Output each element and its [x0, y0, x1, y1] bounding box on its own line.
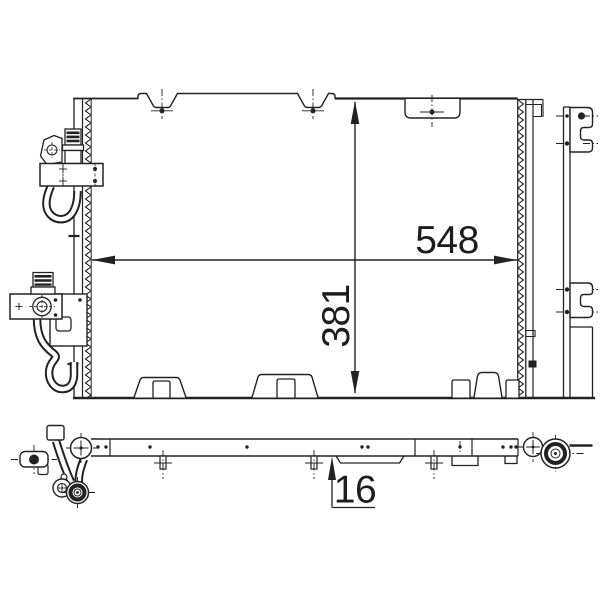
- dimension-width: 548: [92, 219, 517, 264]
- foot-slot: [452, 380, 470, 398]
- arrowhead-right: [494, 256, 517, 265]
- bottom-channel: [336, 456, 404, 463]
- top-tab-bracket: [405, 95, 460, 127]
- arrowhead-down: [351, 371, 360, 394]
- dimension-height: 381: [315, 101, 359, 394]
- side-view-left-fittings: [11, 426, 98, 509]
- side-view: 16: [11, 426, 593, 512]
- foot-slot: [277, 379, 295, 398]
- mounting-pin: [305, 450, 323, 479]
- rivet-dots: [96, 445, 517, 448]
- left-fin-edge: [84, 99, 91, 397]
- top-pin-left: [151, 89, 173, 119]
- top-mounting-bracket: [73, 89, 518, 127]
- bottom-edge-and-feet: [73, 373, 595, 399]
- mounting-pin: [154, 450, 172, 479]
- dimension-height-label: 381: [315, 284, 358, 348]
- outlet-fitting-bottom-left: [10, 273, 87, 390]
- arrowhead-up: [351, 101, 360, 124]
- front-view: 548 381: [10, 89, 598, 398]
- valve-body: [65, 151, 81, 164]
- top-pin-right: [302, 89, 324, 119]
- condenser-technical-drawing: 548 381: [0, 0, 600, 600]
- arrowhead-left: [92, 256, 115, 265]
- foot-slot: [506, 380, 519, 398]
- foot: [474, 373, 502, 398]
- solder-mark: [529, 361, 537, 368]
- dimension-depth-label: 16: [334, 469, 376, 512]
- side-view-right-fittings: [518, 432, 593, 472]
- right-header-tank: [518, 99, 543, 398]
- right-fin-edge: [518, 100, 525, 396]
- dimension-depth: 16: [328, 457, 376, 512]
- bracket-plate: [47, 426, 64, 441]
- foot-slot: [153, 381, 170, 398]
- connection-block: [40, 164, 103, 187]
- bracket-flange: [452, 456, 478, 466]
- right-mounting-bracket-top: [556, 108, 598, 153]
- pipe-end: [29, 455, 39, 465]
- dimension-width-label: 548: [415, 219, 479, 262]
- product-drawing-image: 548 381: [0, 0, 600, 600]
- inlet-fitting-top-left: [40, 129, 103, 219]
- mounting-pin: [425, 450, 443, 479]
- right-mounting-bracket-middle: [556, 283, 598, 318]
- side-view-bar: [91, 439, 518, 479]
- bracket-flange: [505, 456, 517, 464]
